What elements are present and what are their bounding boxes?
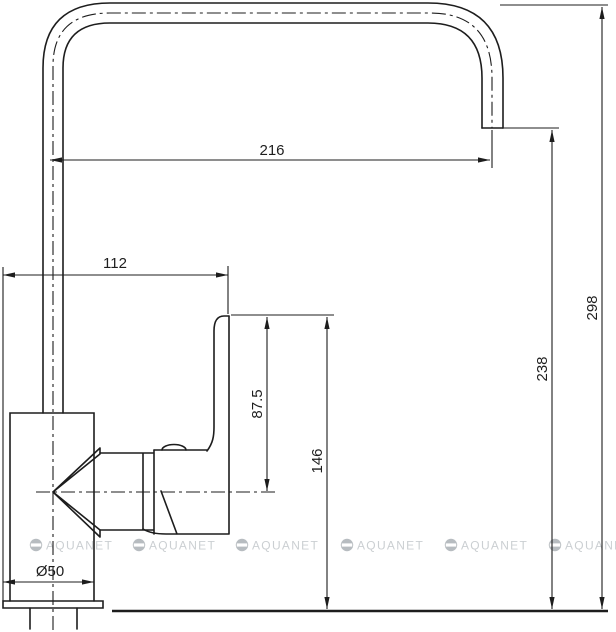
- watermark-text: AQUANET: [565, 539, 616, 553]
- housing-top-bump: [162, 445, 186, 451]
- watermark-text: AQUANET: [357, 539, 424, 553]
- arrowhead-up: [264, 317, 269, 329]
- handle-housing: [143, 316, 229, 534]
- aquanet-logo-slot: [446, 543, 456, 546]
- arrowhead-up: [549, 130, 554, 142]
- dim-label-298: 298: [584, 295, 601, 320]
- dimension-total-height: 298: [584, 7, 605, 609]
- handle-lever: [207, 316, 229, 451]
- watermark-text: AQUANET: [46, 539, 113, 553]
- drawing-canvas: AQUANET AQUANET AQUANET AQUANET AQUANET …: [0, 0, 616, 632]
- aquanet-logo-slot: [550, 543, 560, 546]
- spout-pipe-inner: [63, 23, 482, 413]
- dimension-outlet-height: 238: [534, 130, 555, 609]
- watermark: AQUANET: [133, 539, 216, 553]
- aquanet-logo-slot: [31, 543, 41, 546]
- dim-label-216: 216: [259, 142, 284, 159]
- arrowhead-left: [3, 272, 15, 277]
- dimension-handle-rise: 87.5: [249, 317, 270, 491]
- arrowhead-down: [549, 597, 554, 609]
- watermark-row: AQUANET AQUANET AQUANET AQUANET AQUANET …: [30, 539, 616, 553]
- arrowhead-left: [50, 157, 62, 162]
- arrowhead-right: [216, 272, 228, 277]
- faucet-outline: [3, 3, 503, 629]
- centerlines: [36, 13, 492, 630]
- dimension-spout-offset: 112: [3, 255, 228, 278]
- arrowhead-down: [264, 479, 269, 491]
- watermark-text: AQUANET: [149, 539, 216, 553]
- watermark-text: AQUANET: [461, 539, 528, 553]
- watermark: AQUANET: [549, 539, 616, 553]
- watermark-text: AQUANET: [252, 539, 319, 553]
- arrowhead-left: [3, 579, 15, 584]
- arrowhead-right: [478, 157, 490, 162]
- aquanet-logo-slot: [342, 543, 352, 546]
- dim-label-146: 146: [309, 448, 326, 473]
- arrowhead-up: [599, 7, 604, 19]
- spout-pipe-outer: [43, 3, 503, 413]
- watermark: AQUANET: [236, 539, 319, 553]
- dim-label-87-5: 87.5: [249, 389, 266, 418]
- watermark: AQUANET: [30, 539, 113, 553]
- dimension-handle-height: 146: [309, 317, 330, 609]
- aquanet-logo-slot: [237, 543, 247, 546]
- dim-label-112: 112: [103, 255, 127, 272]
- aquanet-logo-slot: [134, 543, 144, 546]
- dim-label-238: 238: [534, 356, 551, 381]
- arrowhead-right: [82, 579, 94, 584]
- arrowhead-up: [324, 317, 329, 329]
- arrowhead-down: [324, 597, 329, 609]
- dimension-spout-reach: 216: [50, 142, 490, 163]
- arrowhead-down: [599, 597, 604, 609]
- faucet-dimension-drawing: AQUANET AQUANET AQUANET AQUANET AQUANET …: [0, 0, 616, 632]
- dim-label-d50: Ø50: [36, 563, 64, 580]
- dimension-base-diameter: Ø50: [3, 563, 94, 585]
- watermark: AQUANET: [445, 539, 528, 553]
- pipe-centerline: [53, 13, 492, 630]
- watermark: AQUANET: [341, 539, 424, 553]
